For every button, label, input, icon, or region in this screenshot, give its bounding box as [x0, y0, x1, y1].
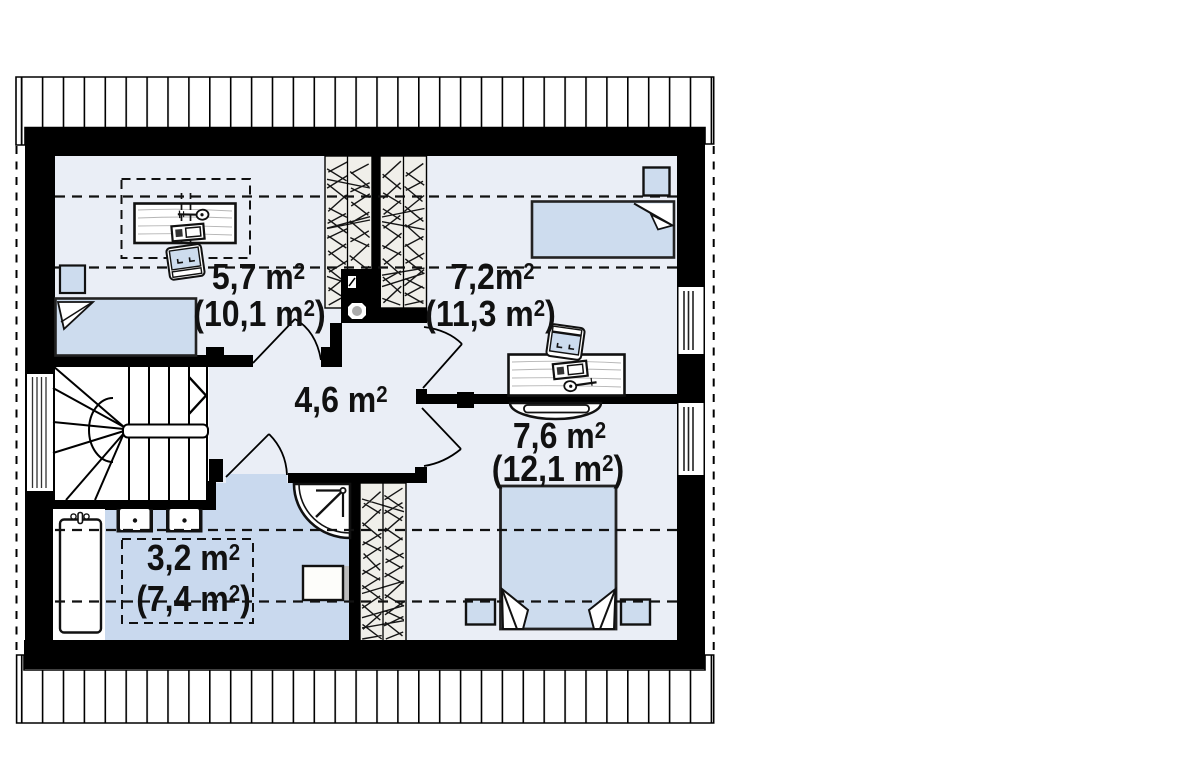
svg-text:3,2 m2: 3,2 m2: [147, 538, 240, 578]
svg-text:7,2m2: 7,2m2: [450, 257, 534, 297]
svg-text:5,7 m2: 5,7 m2: [212, 257, 305, 297]
svg-text:4,6 m2: 4,6 m2: [294, 380, 387, 420]
